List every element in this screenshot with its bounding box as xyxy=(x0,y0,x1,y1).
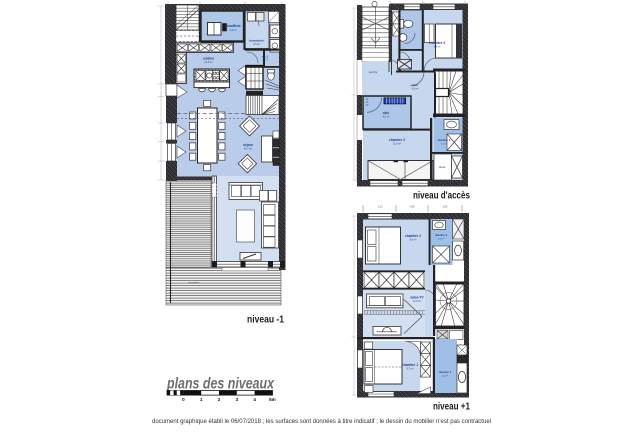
svg-text:cuisine: cuisine xyxy=(203,57,215,61)
svg-text:séjour: séjour xyxy=(243,143,254,147)
svg-text:11,8 m²: 11,8 m² xyxy=(393,143,401,146)
svg-text:4: 4 xyxy=(253,397,256,402)
svg-text:4,1 m²: 4,1 m² xyxy=(441,142,447,145)
svg-text:4,0 m²: 4,0 m² xyxy=(438,237,444,240)
svg-text:3,10: 3,10 xyxy=(378,206,383,209)
svg-text:6,5 m²: 6,5 m² xyxy=(230,29,237,32)
svg-text:douche 2: douche 2 xyxy=(435,233,448,237)
svg-text:0: 0 xyxy=(182,397,185,402)
svg-text:niveau -1: niveau -1 xyxy=(247,314,284,326)
svg-text:9,8 m²: 9,8 m² xyxy=(410,239,417,242)
svg-text:niveau +1: niveau +1 xyxy=(433,401,470,413)
svg-text:chambre 4: chambre 4 xyxy=(429,41,445,45)
svg-text:4,2 m²: 4,2 m² xyxy=(442,374,448,377)
svg-text:3,05: 3,05 xyxy=(443,206,448,209)
svg-text:4,5 m²: 4,5 m² xyxy=(253,43,260,46)
svg-text:terrasse: terrasse xyxy=(189,281,200,285)
svg-text:2,95: 2,95 xyxy=(410,206,415,209)
svg-text:buanderie: buanderie xyxy=(249,39,264,43)
svg-text:3: 3 xyxy=(236,397,239,402)
svg-text:porche: porche xyxy=(369,70,378,74)
svg-text:dress.: dress. xyxy=(439,165,447,169)
svg-text:douche 3: douche 3 xyxy=(438,138,451,142)
svg-text:plans des niveaux: plans des niveaux xyxy=(166,376,275,393)
svg-text:6,9 m²: 6,9 m² xyxy=(412,88,419,91)
svg-text:1,5 m²: 1,5 m² xyxy=(262,59,268,62)
svg-text:2: 2 xyxy=(218,397,221,402)
svg-text:douche 1: douche 1 xyxy=(439,370,452,374)
svg-text:42,7 m²: 42,7 m² xyxy=(244,148,252,151)
svg-text:skis: skis xyxy=(383,111,389,115)
svg-text:chambre 2: chambre 2 xyxy=(405,234,421,238)
svg-text:5m: 5m xyxy=(269,397,276,402)
svg-text:salon TV: salon TV xyxy=(410,296,424,300)
svg-text:4,2 m²: 4,2 m² xyxy=(383,116,390,119)
svg-text:document graphique établi le 0: document graphique établi le 06/07/2018 … xyxy=(152,418,491,425)
svg-text:chaufferie: chaufferie xyxy=(225,24,240,28)
svg-text:12,6 m²: 12,6 m² xyxy=(413,300,421,303)
svg-text:21,5 m²: 21,5 m² xyxy=(204,61,212,64)
svg-text:chambre 1: chambre 1 xyxy=(402,363,418,367)
svg-text:chambre 3: chambre 3 xyxy=(389,138,405,142)
svg-text:wc 1: wc 1 xyxy=(261,55,269,59)
svg-text:9,6 m²: 9,6 m² xyxy=(434,46,441,49)
svg-text:niveau d'accès: niveau d'accès xyxy=(413,190,470,202)
svg-text:9,7 m²: 9,7 m² xyxy=(407,368,414,371)
svg-text:1: 1 xyxy=(200,397,203,402)
